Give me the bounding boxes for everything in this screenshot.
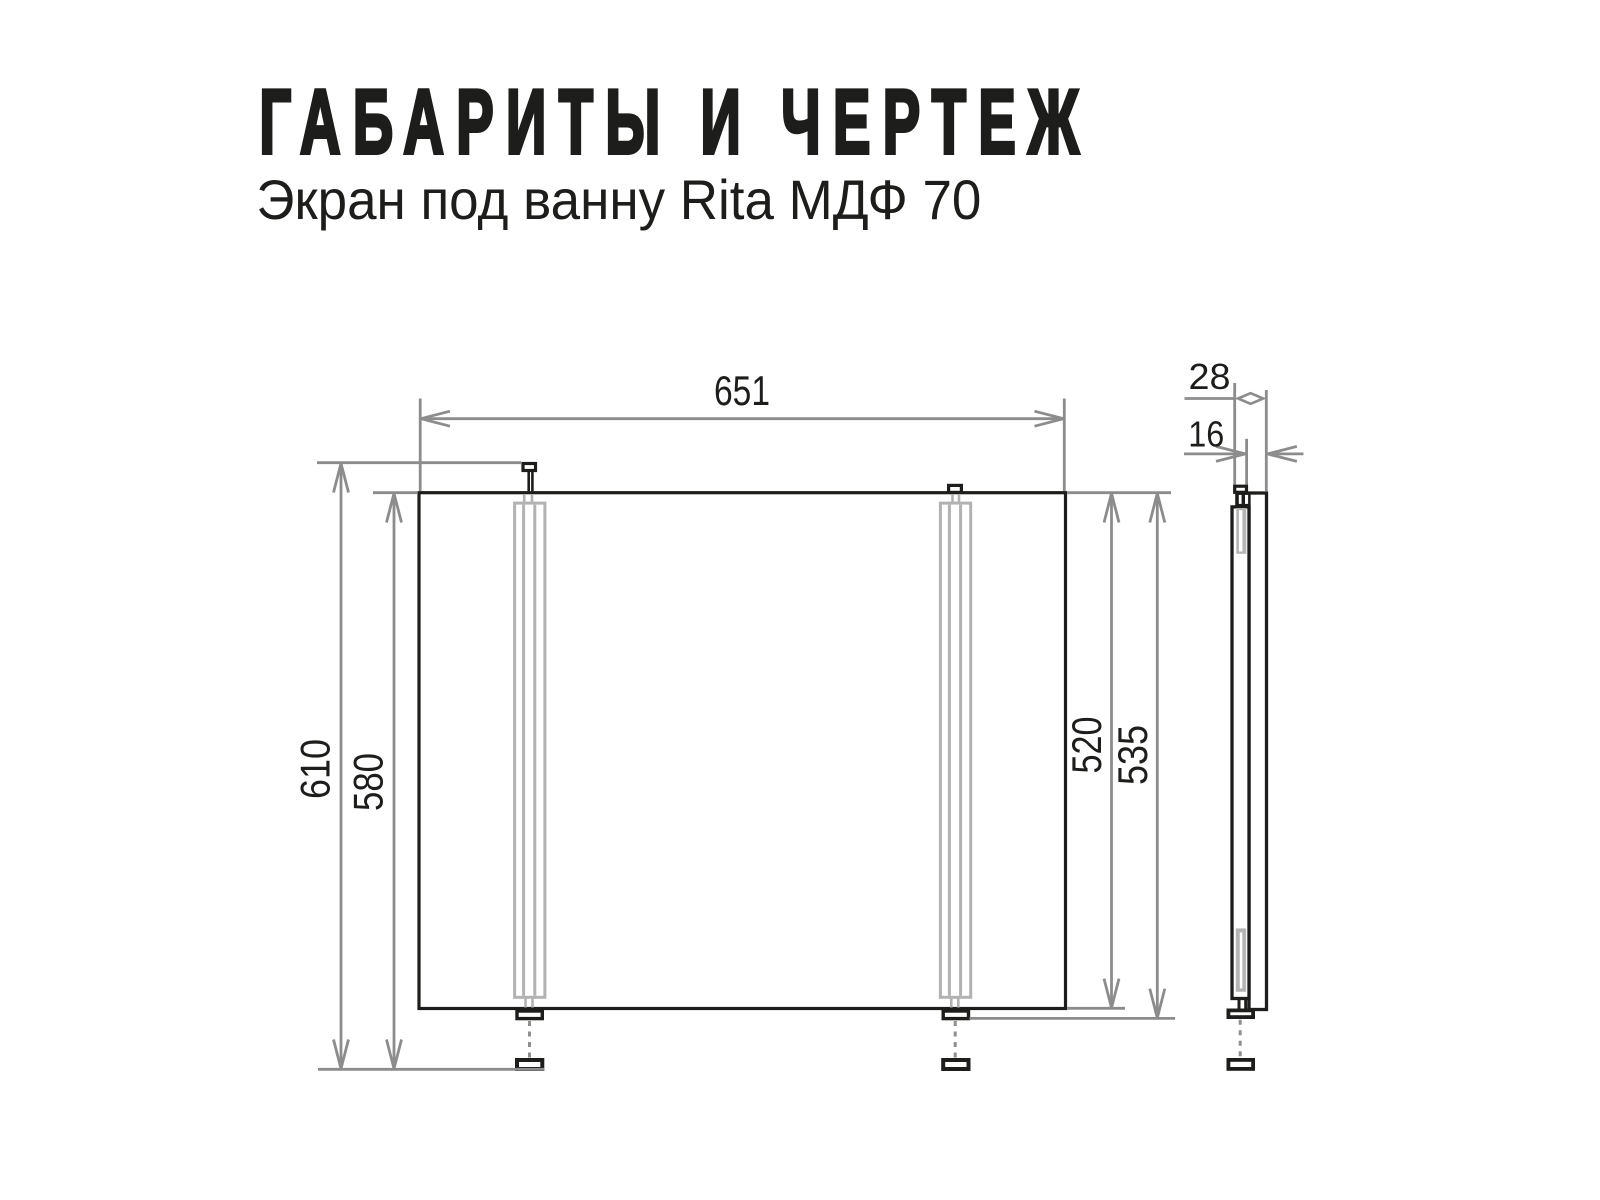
svg-text:28: 28 xyxy=(1189,356,1231,397)
svg-text:535: 535 xyxy=(1109,725,1156,785)
svg-text:520: 520 xyxy=(1063,717,1110,774)
svg-text:ГАБАРИТЫ И ЧЕРТЕЖ: ГАБАРИТЫ И ЧЕРТЕЖ xyxy=(259,72,1091,173)
svg-text:610: 610 xyxy=(292,739,339,799)
svg-text:651: 651 xyxy=(714,367,770,414)
svg-text:Экран под ванну Rita МДФ 70: Экран под ванну Rita МДФ 70 xyxy=(256,168,981,231)
svg-text:16: 16 xyxy=(1188,414,1224,455)
svg-text:580: 580 xyxy=(345,753,392,811)
